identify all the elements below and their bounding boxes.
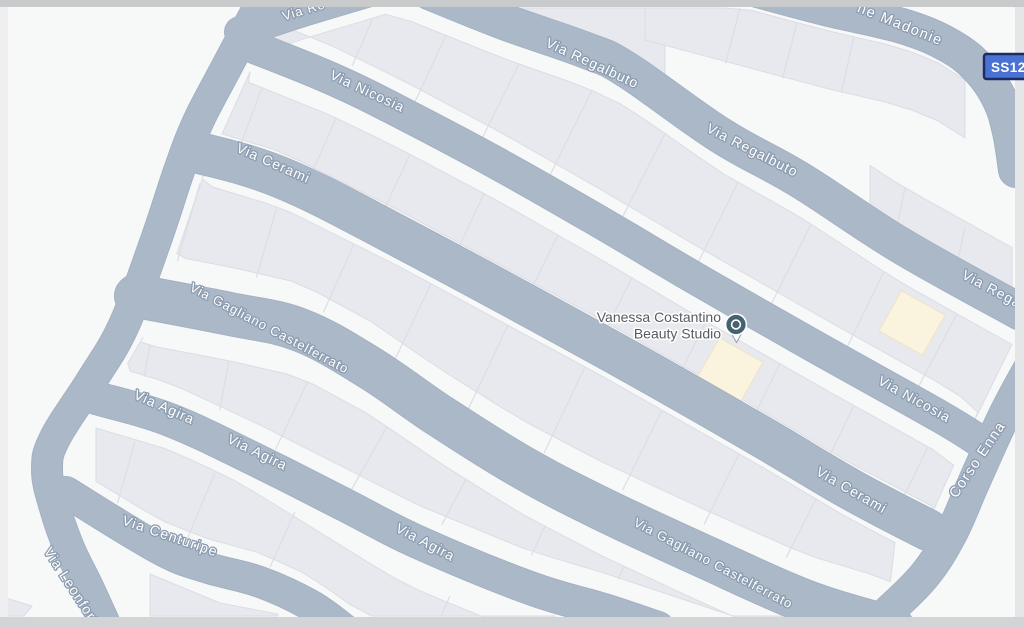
svg-text:SS120: SS120 [991, 60, 1024, 75]
svg-text:Beauty Studio: Beauty Studio [634, 326, 721, 342]
svg-text:Vanessa Costantino: Vanessa Costantino [597, 309, 721, 325]
